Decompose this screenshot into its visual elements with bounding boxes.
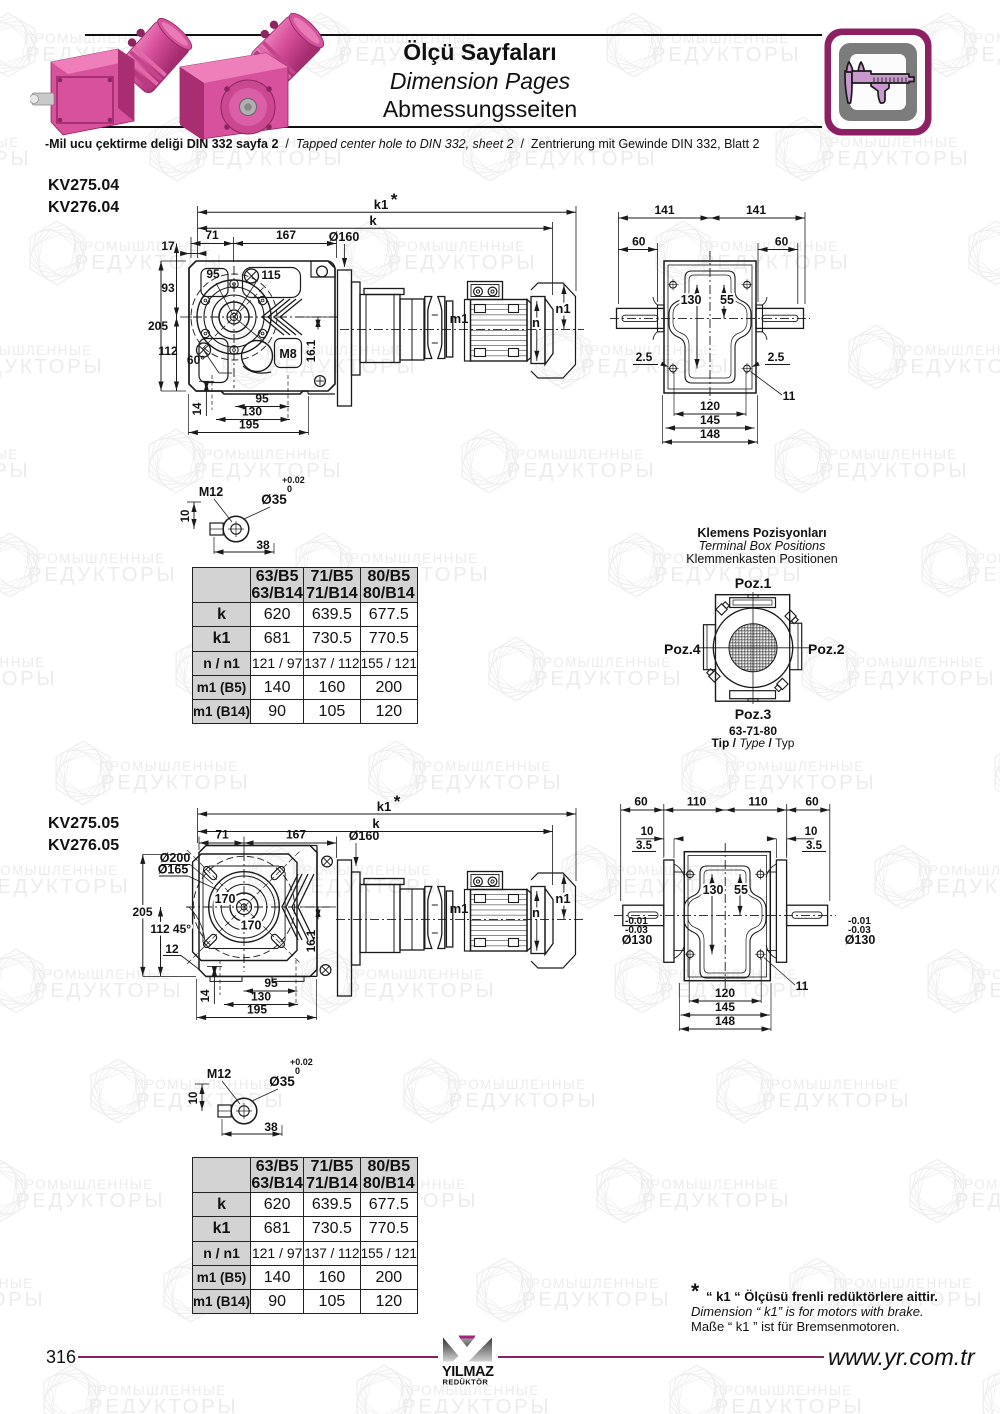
svg-text:k: k [369, 213, 377, 228]
svg-text:55: 55 [734, 883, 748, 897]
svg-text:+0.02: +0.02 [290, 1057, 313, 1067]
svg-text:*: * [394, 792, 401, 811]
svg-text:141: 141 [746, 203, 766, 217]
svg-text:55: 55 [720, 293, 734, 307]
svg-text:Ø130: Ø130 [622, 933, 653, 947]
svg-text:Ø165: Ø165 [158, 863, 189, 877]
svg-text:10: 10 [188, 1092, 200, 1105]
svg-text:60: 60 [632, 235, 646, 249]
svg-text:16.1: 16.1 [306, 929, 318, 952]
svg-text:195: 195 [247, 1003, 267, 1017]
svg-text:60: 60 [805, 795, 819, 809]
svg-text:Ø160: Ø160 [349, 829, 380, 843]
svg-text:130: 130 [242, 405, 262, 419]
svg-text:17: 17 [161, 239, 175, 253]
svg-text:145: 145 [700, 413, 720, 427]
svg-text:71: 71 [205, 228, 219, 242]
svg-text:Ø35: Ø35 [261, 492, 287, 507]
svg-text:Ø160: Ø160 [329, 230, 360, 244]
svg-text:167: 167 [286, 828, 306, 842]
svg-text:3.5: 3.5 [636, 840, 653, 852]
svg-text:14: 14 [192, 402, 204, 415]
svg-text:38: 38 [256, 538, 270, 552]
svg-text:M12: M12 [207, 1067, 231, 1081]
svg-text:95: 95 [264, 976, 278, 990]
svg-text:k1: k1 [374, 197, 388, 212]
svg-text:M8: M8 [279, 347, 296, 361]
svg-text:2.5: 2.5 [768, 350, 785, 364]
svg-text:REDÜKTÖR: REDÜKTÖR [443, 1378, 489, 1387]
svg-text:112: 112 [158, 344, 178, 358]
svg-text:Ø130: Ø130 [845, 933, 876, 947]
svg-text:0: 0 [295, 1066, 300, 1076]
svg-text:16.1: 16.1 [306, 339, 318, 362]
svg-text:38: 38 [264, 1120, 278, 1134]
svg-text:60: 60 [634, 795, 648, 809]
svg-text:n: n [532, 905, 540, 920]
svg-text:95: 95 [255, 392, 269, 406]
svg-text:205: 205 [132, 905, 152, 919]
svg-text:+0.02: +0.02 [282, 475, 305, 485]
svg-text:14: 14 [200, 989, 212, 1002]
svg-text:n: n [532, 315, 540, 330]
svg-text:148: 148 [700, 427, 720, 441]
svg-text:11: 11 [796, 979, 809, 993]
svg-text:3.5: 3.5 [806, 840, 823, 852]
svg-text:205: 205 [148, 319, 168, 333]
svg-text:10: 10 [641, 826, 654, 838]
svg-text:n1: n1 [555, 301, 570, 316]
svg-text:10: 10 [805, 826, 818, 838]
svg-text:Ø35: Ø35 [269, 1074, 295, 1089]
svg-text:110: 110 [687, 795, 707, 809]
svg-text:0: 0 [287, 484, 292, 494]
svg-text:120: 120 [700, 399, 720, 413]
svg-text:112: 112 [150, 922, 170, 936]
svg-text:130: 130 [251, 990, 271, 1004]
svg-text:145: 145 [715, 1000, 735, 1014]
svg-text:120: 120 [715, 986, 735, 1000]
svg-text:k1: k1 [377, 799, 391, 814]
svg-text:60: 60 [775, 235, 789, 249]
svg-text:170: 170 [215, 892, 236, 906]
svg-text:110: 110 [748, 795, 768, 809]
svg-text:95: 95 [206, 267, 220, 281]
svg-text:148: 148 [715, 1014, 735, 1028]
svg-text:n1: n1 [555, 891, 570, 906]
svg-text:45°: 45° [173, 922, 191, 936]
svg-text:71: 71 [215, 828, 229, 842]
svg-text:195: 195 [239, 418, 259, 432]
svg-text:12: 12 [165, 942, 179, 956]
svg-text:60°: 60° [187, 353, 205, 367]
svg-text:M12: M12 [199, 485, 223, 499]
svg-text:167: 167 [276, 228, 296, 242]
svg-text:10: 10 [180, 510, 192, 523]
svg-text:2.5: 2.5 [636, 350, 653, 364]
svg-text:11: 11 [783, 389, 796, 403]
svg-text:130: 130 [681, 293, 702, 307]
svg-text:*: * [391, 190, 398, 209]
svg-text:141: 141 [654, 203, 674, 217]
svg-text:130: 130 [703, 883, 724, 897]
svg-text:93: 93 [161, 281, 175, 295]
svg-text:170: 170 [241, 919, 262, 933]
svg-text:115: 115 [261, 268, 281, 282]
